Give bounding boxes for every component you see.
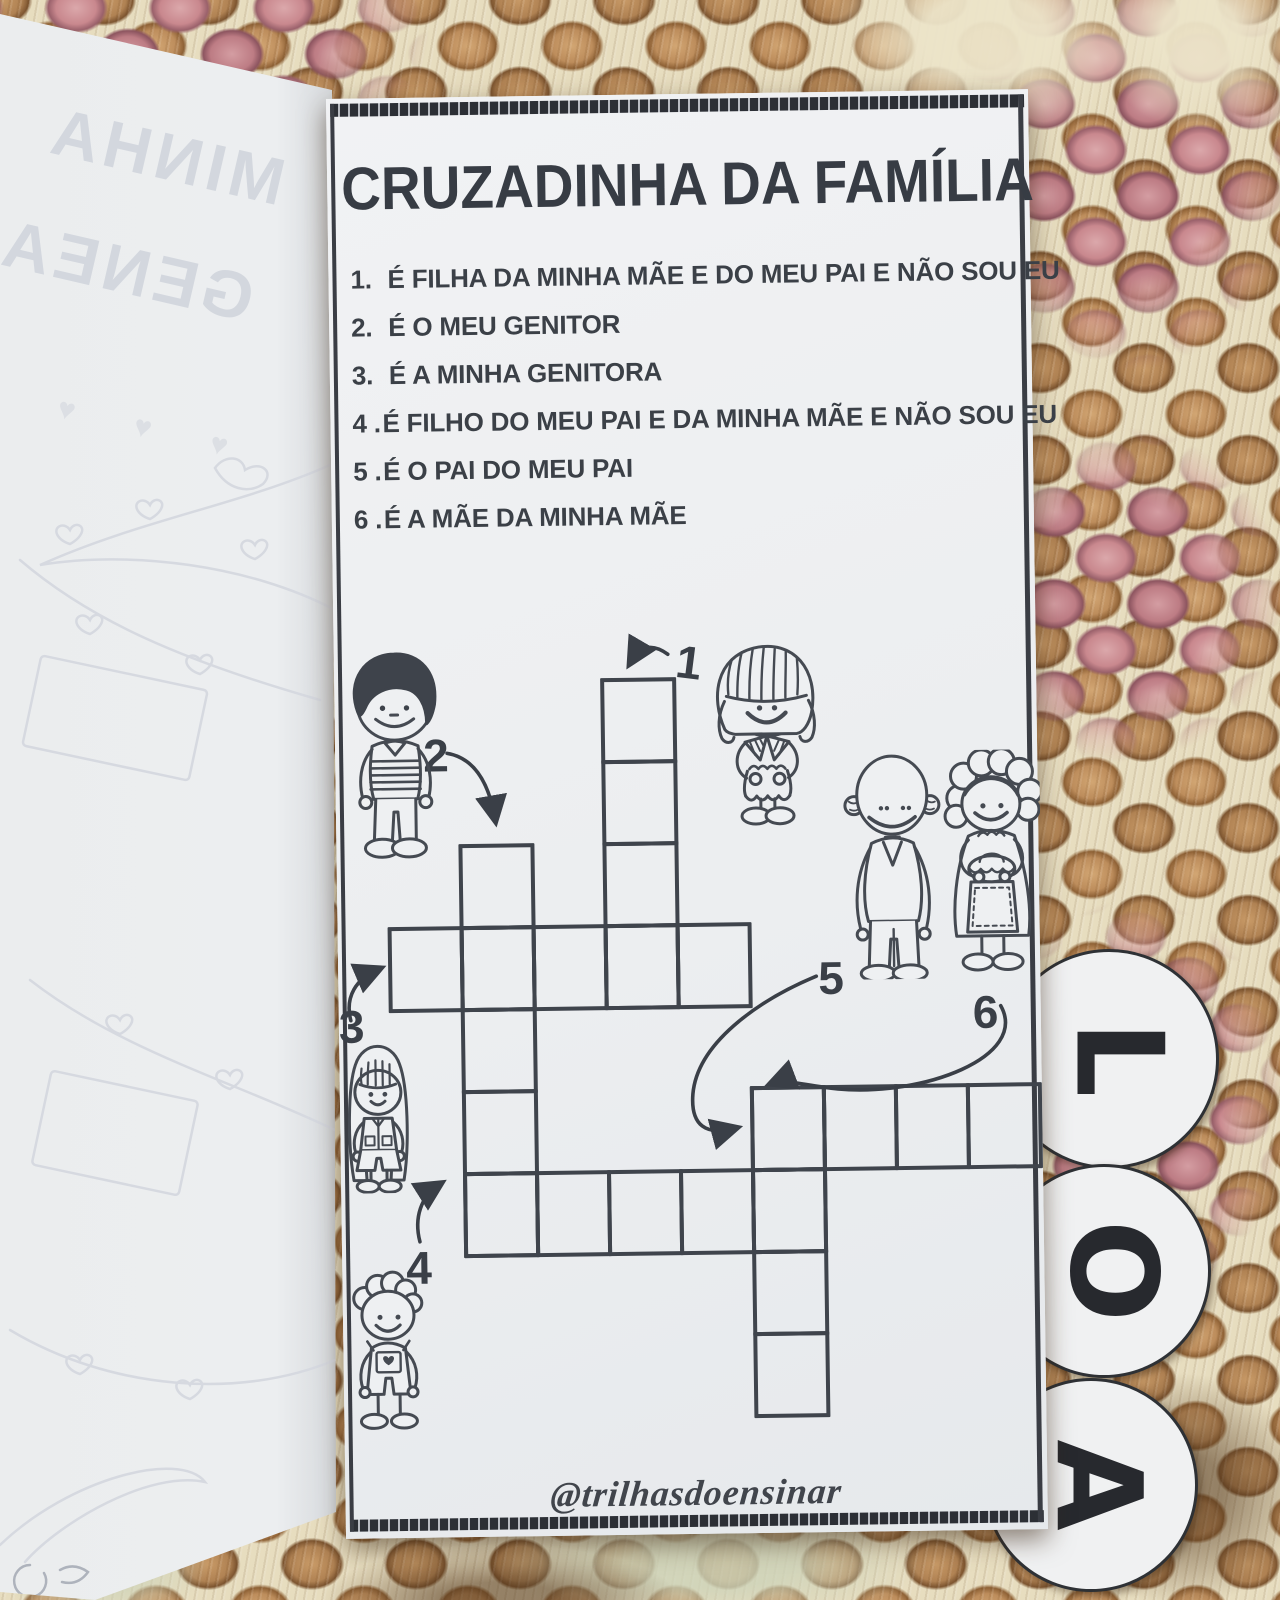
crossword-cell bbox=[750, 1085, 827, 1172]
crossword-cell bbox=[679, 1168, 756, 1255]
figure-little-boy bbox=[342, 1270, 430, 1441]
crossword-cell bbox=[676, 922, 753, 1009]
crossword-cell bbox=[607, 1169, 684, 1256]
left-page: MINHA GENEA ♥ ♥ ♥ bbox=[0, 0, 345, 1600]
crossword-cell bbox=[966, 1082, 1043, 1169]
crossword-cell bbox=[751, 1167, 828, 1254]
crossword-cell bbox=[601, 759, 678, 846]
crossword-cell bbox=[463, 1171, 540, 1258]
figure-girl-long-hair bbox=[339, 1028, 417, 1194]
figure-grandfather bbox=[841, 750, 944, 979]
crossword-cell bbox=[822, 1084, 899, 1171]
crossword-cell bbox=[388, 926, 465, 1013]
faint-vine-doodles bbox=[0, 0, 345, 1600]
crossword-cell bbox=[752, 1249, 829, 1336]
photo-of-family-crossword-worksheet: MINHA GENEA ♥ ♥ ♥ bbox=[0, 0, 1280, 1600]
crossword-cell bbox=[602, 841, 679, 928]
crossword-cell bbox=[604, 923, 681, 1010]
tab-letter-L: L bbox=[1048, 1021, 1187, 1097]
crossword-cell bbox=[461, 1007, 538, 1094]
crossword-cell bbox=[458, 843, 535, 930]
figure-grandmother bbox=[935, 749, 1042, 978]
crossword-cell bbox=[462, 1089, 539, 1176]
crossword-cell bbox=[535, 1170, 612, 1257]
figure-boy bbox=[344, 648, 443, 861]
crossword-cell bbox=[894, 1083, 971, 1170]
figure-girl bbox=[702, 638, 833, 830]
tab-letter-A: A bbox=[1030, 1439, 1168, 1530]
crossword-cell bbox=[532, 924, 609, 1011]
crossword-cell bbox=[600, 677, 677, 764]
crossword-cell bbox=[753, 1331, 830, 1418]
tab-letter-O: O bbox=[1043, 1220, 1182, 1322]
worksheet-page: CRUZADINHA DA FAMÍLIA 1. É FILHA DA MINH… bbox=[326, 89, 1048, 1539]
crossword-cell bbox=[460, 925, 537, 1012]
